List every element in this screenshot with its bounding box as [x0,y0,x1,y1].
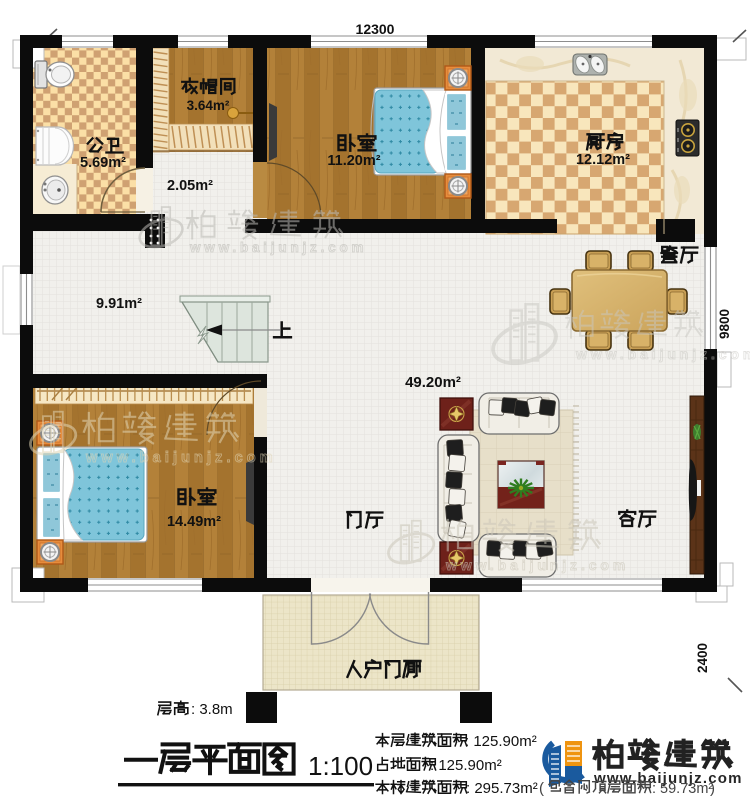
svg-text:www.baijunjz.com: www.baijunjz.com [85,450,277,466]
svg-text:5.69m²: 5.69m² [80,155,126,171]
svg-text:): ) [710,780,715,797]
svg-text:49.20m²: 49.20m² [405,374,461,391]
svg-text:www.baijunjz.com: www.baijunjz.com [445,557,629,573]
svg-text:www.baijunjz.com: www.baijunjz.com [189,240,367,255]
svg-text:: 125.90m²: : 125.90m² [465,733,537,750]
svg-text:14.49m²: 14.49m² [167,514,221,530]
svg-text:9800: 9800 [717,309,732,339]
svg-text:: 59.73m²: : 59.73m² [652,781,713,797]
svg-text:3.64m²: 3.64m² [187,98,230,113]
svg-text:www.baijunjz.com: www.baijunjz.com [575,346,750,362]
svg-text:: 125.90m²: : 125.90m² [430,757,502,774]
svg-text:: 3.8m: : 3.8m [191,701,233,718]
svg-text:9.91m²: 9.91m² [96,296,142,312]
svg-text:: 295.73m²: : 295.73m² [466,780,538,797]
svg-text:1:100: 1:100 [308,751,373,781]
svg-text:12.12m²: 12.12m² [576,152,630,168]
svg-text:2400: 2400 [695,643,710,673]
svg-text:12300: 12300 [356,21,395,37]
svg-text:11.20m²: 11.20m² [327,153,380,169]
svg-text:2.05m²: 2.05m² [167,178,213,194]
svg-text:(: ( [539,780,544,797]
